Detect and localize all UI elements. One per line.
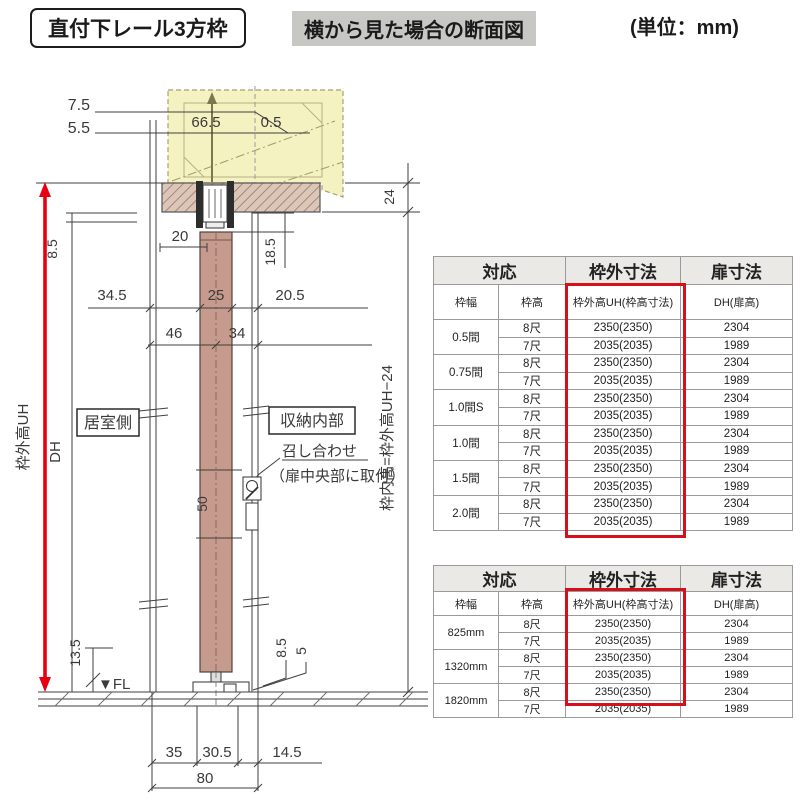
dim-hanger-h: 18.5 xyxy=(262,238,278,265)
dim-front-a: 34.5 xyxy=(97,287,126,304)
cell: 8尺 xyxy=(499,650,566,667)
cell: 2350(2350) xyxy=(566,320,681,338)
cell: 1320mm xyxy=(434,650,499,684)
col-dh: DH(扉高) xyxy=(681,592,793,616)
cell: 8尺 xyxy=(499,320,566,338)
unit-note: (単位：mm) xyxy=(630,11,739,40)
cell: 2035(2035) xyxy=(566,633,681,650)
dim-back-a: 20.5 xyxy=(275,287,304,304)
table-row: 2.0間8尺2350(2350)2304 xyxy=(434,495,793,513)
cell: 2350(2350) xyxy=(566,495,681,513)
cell: 1989 xyxy=(681,513,793,531)
dim-bot-total: 80 xyxy=(197,770,214,787)
cell: 2350(2350) xyxy=(566,460,681,478)
dim-door-t: 25 xyxy=(208,287,225,304)
cell: 2035(2035) xyxy=(566,701,681,718)
cell: 2035(2035) xyxy=(566,513,681,531)
bottom-rail-guide xyxy=(193,682,249,692)
cell: 7尺 xyxy=(499,478,566,496)
dim-bot-a: 35 xyxy=(166,744,183,761)
cell: 7尺 xyxy=(499,407,566,425)
col-taiou: 対応 xyxy=(434,257,566,285)
table-row: 1820mm8尺2350(2350)2304 xyxy=(434,684,793,701)
upper-cabinet-outline: 66.5 0.5 xyxy=(168,86,343,197)
col-wakuhaba: 枠幅 xyxy=(434,592,499,616)
cell: 1989 xyxy=(681,667,793,684)
fl-marker: ▼FL xyxy=(98,676,130,693)
cell: 2304 xyxy=(681,355,793,373)
cell: 1989 xyxy=(681,407,793,425)
cell: 2304 xyxy=(681,650,793,667)
table-row: 0.5間8尺2350(2350)2304 xyxy=(434,320,793,338)
cell: 1820mm xyxy=(434,684,499,718)
cell: 1.0間S xyxy=(434,390,499,425)
cell: 8尺 xyxy=(499,355,566,373)
cell: 1989 xyxy=(681,701,793,718)
frame-header-hatched xyxy=(162,183,320,212)
cell: 2350(2350) xyxy=(566,355,681,373)
cell: 8尺 xyxy=(499,495,566,513)
cell: 1989 xyxy=(681,478,793,496)
table-row: 1320mm8尺2350(2350)2304 xyxy=(434,650,793,667)
spec-table-ken: 対応 枠外寸法 扉寸法 枠幅 枠高 枠外高UH(枠高寸法) DH(扉高) 0.5… xyxy=(433,256,793,531)
cell: 8尺 xyxy=(499,684,566,701)
cell: 7尺 xyxy=(499,701,566,718)
col-taiou: 対応 xyxy=(434,566,566,592)
dim-bot-b: 30.5 xyxy=(202,744,231,761)
room-side-label: 居室側 xyxy=(84,414,132,432)
col-wakudaka: 枠高 xyxy=(499,592,566,616)
bottom-dimension-chain: 35 30.5 14.5 80 xyxy=(148,692,322,792)
cell: 2304 xyxy=(681,425,793,443)
cell: 2035(2035) xyxy=(566,337,681,355)
cell: 7尺 xyxy=(499,443,566,461)
cell: 0.75間 xyxy=(434,355,499,390)
closet-side-label: 収納内部 xyxy=(280,412,344,430)
cell: 2304 xyxy=(681,616,793,633)
table-row: 0.75間8尺2350(2350)2304 xyxy=(434,355,793,373)
cell: 2.0間 xyxy=(434,495,499,530)
cell: 1989 xyxy=(681,633,793,650)
cell: 2350(2350) xyxy=(566,650,681,667)
cell: 7尺 xyxy=(499,667,566,684)
dim-guide-lip: 5 xyxy=(293,647,309,655)
dim-floor-a: 13.5 xyxy=(67,639,83,666)
col-uh: 枠外高UH(枠高寸法) xyxy=(566,592,681,616)
col-dh: DH(扉高) xyxy=(681,285,793,320)
dim-front-c: 46 xyxy=(166,325,183,342)
cell: 2350(2350) xyxy=(566,684,681,701)
cell: 2304 xyxy=(681,320,793,338)
dim-rail-w: 20 xyxy=(172,228,189,245)
spec-table-mm: 対応 枠外寸法 扉寸法 枠幅 枠高 枠外高UH(枠高寸法) DH(扉高) 825… xyxy=(433,565,793,718)
dim-guide-h: 8.5 xyxy=(273,638,289,658)
hanger-roller-unit xyxy=(196,181,234,228)
cell: 2350(2350) xyxy=(566,616,681,633)
cell: 2304 xyxy=(681,684,793,701)
cell: 2035(2035) xyxy=(566,407,681,425)
cell: 8尺 xyxy=(499,616,566,633)
cell: 2035(2035) xyxy=(566,478,681,496)
cell: 1989 xyxy=(681,443,793,461)
uh-label: 枠外高UH xyxy=(15,404,32,471)
col-wakugai: 枠外寸法 xyxy=(566,257,681,285)
table-row: 1.0間8尺2350(2350)2304 xyxy=(434,425,793,443)
col-tobira: 扉寸法 xyxy=(681,257,793,285)
col-wakudaka: 枠高 xyxy=(499,285,566,320)
table-subheader-row: 枠幅 枠高 枠外高UH(枠高寸法) DH(扉高) xyxy=(434,285,793,320)
dim-pocket-a: 66.5 xyxy=(191,114,220,131)
dh-label: DH xyxy=(47,441,64,463)
table-subheader-row: 枠幅 枠高 枠外高UH(枠高寸法) DH(扉高) xyxy=(434,592,793,616)
table-header-row: 対応 枠外寸法 扉寸法 xyxy=(434,566,793,592)
meeting-label: 召し合わせ xyxy=(282,443,357,460)
meeting-note: （扉中央部に取付） xyxy=(270,468,405,485)
dim-offset-b: 5.5 xyxy=(68,120,90,137)
cell: 1.0間 xyxy=(434,425,499,460)
cell: 8尺 xyxy=(499,425,566,443)
bottom-guide-dims: 8.5 5 xyxy=(253,638,309,690)
dim-back-c: 34 xyxy=(229,325,246,342)
cell: 2350(2350) xyxy=(566,390,681,408)
cell: 2304 xyxy=(681,460,793,478)
cross-section-diagram: 66.5 0.5 7.5 5.5 xyxy=(0,0,440,800)
cell: 2035(2035) xyxy=(566,443,681,461)
table-header-row: 対応 枠外寸法 扉寸法 xyxy=(434,257,793,285)
dim-meet-h: 50 xyxy=(194,496,210,512)
cell: 825mm xyxy=(434,616,499,650)
cell: 7尺 xyxy=(499,337,566,355)
cell: 1989 xyxy=(681,337,793,355)
cell: 7尺 xyxy=(499,633,566,650)
dim-header-height: 24 xyxy=(381,189,397,205)
table-row: 825mm8尺2350(2350)2304 xyxy=(434,616,793,633)
cell: 2350(2350) xyxy=(566,425,681,443)
cell: 2304 xyxy=(681,495,793,513)
cell: 7尺 xyxy=(499,372,566,390)
cell: 8尺 xyxy=(499,390,566,408)
col-wakuhaba: 枠幅 xyxy=(434,285,499,320)
cell: 1989 xyxy=(681,372,793,390)
dim-bot-c: 14.5 xyxy=(272,744,301,761)
col-uh: 枠外高UH(枠高寸法) xyxy=(566,285,681,320)
cell: 2304 xyxy=(681,390,793,408)
cell: 7尺 xyxy=(499,513,566,531)
inner-height-label: 枠内高=枠外高UH−24 xyxy=(379,365,396,511)
dim-offset-a: 7.5 xyxy=(68,97,90,114)
left-dimension-chain: 枠外高UH 8.5 DH 13.5 ▼FL xyxy=(15,182,162,693)
col-wakugai: 枠外寸法 xyxy=(566,566,681,592)
cell: 2035(2035) xyxy=(566,667,681,684)
cell: 2035(2035) xyxy=(566,372,681,390)
dim-top-gap: 8.5 xyxy=(44,239,60,259)
table-row: 1.0間S8尺2350(2350)2304 xyxy=(434,390,793,408)
cell: 1.5間 xyxy=(434,460,499,495)
floor xyxy=(38,692,428,706)
cell: 8尺 xyxy=(499,460,566,478)
table-row: 1.5間8尺2350(2350)2304 xyxy=(434,460,793,478)
col-tobira: 扉寸法 xyxy=(681,566,793,592)
cell: 0.5間 xyxy=(434,320,499,355)
